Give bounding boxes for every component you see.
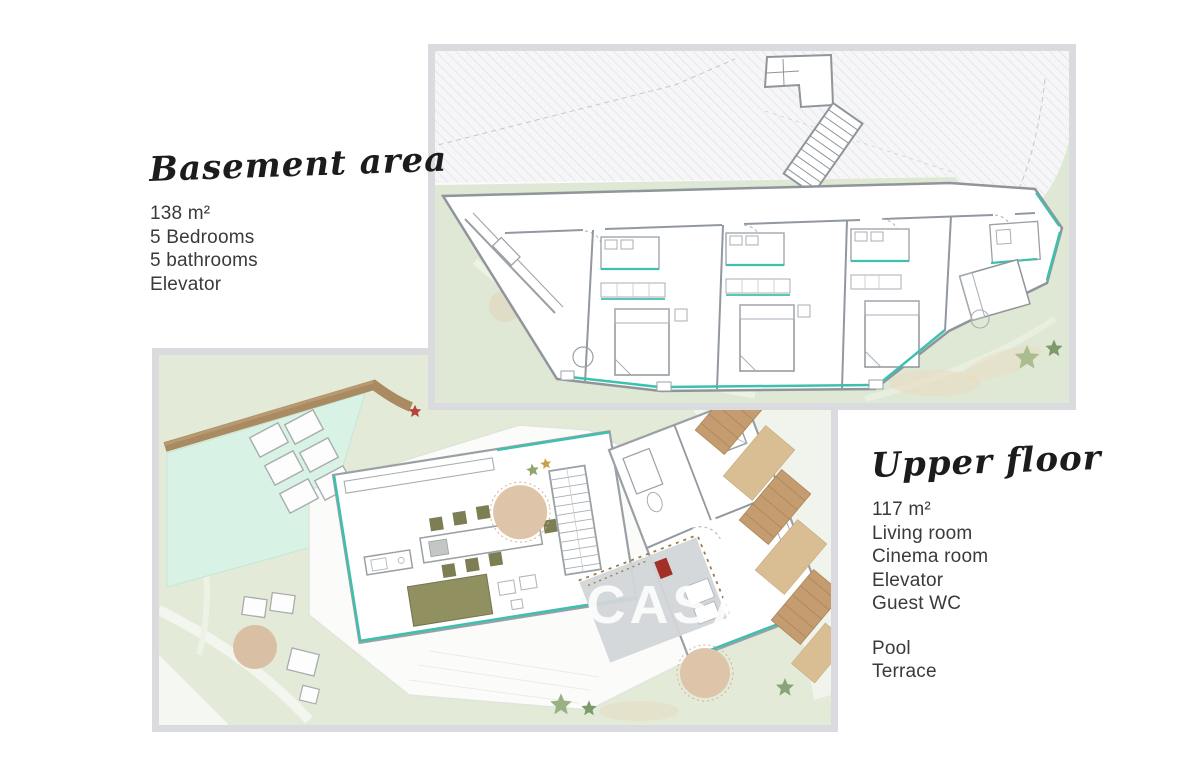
upper-feature: Cinema room bbox=[872, 545, 1132, 569]
upper-title: Upper floor bbox=[871, 437, 1132, 486]
basement-floorplan-card bbox=[428, 44, 1076, 410]
upper-feature: Elevator bbox=[872, 569, 1132, 593]
basement-area: 138 m² bbox=[150, 202, 450, 226]
upper-outdoor-feature: Pool bbox=[872, 637, 1132, 661]
basement-feature: 5 Bedrooms bbox=[150, 226, 450, 250]
upper-outdoor-feature: Terrace bbox=[872, 660, 1132, 684]
upper-area: 117 m² bbox=[872, 498, 1132, 522]
upper-feature: Living room bbox=[872, 522, 1132, 546]
upper-feature: Guest WC bbox=[872, 592, 1132, 616]
tree-icon bbox=[233, 625, 277, 669]
basement-info-panel: Basement area 138 m² 5 Bedrooms 5 bathro… bbox=[150, 150, 450, 296]
basement-specs: 138 m² 5 Bedrooms 5 bathrooms Elevator bbox=[150, 202, 450, 296]
page: CASA Basement area 138 m² 5 Bedrooms 5 b… bbox=[0, 0, 1200, 768]
upper-specs: 117 m² Living room Cinema room Elevator … bbox=[872, 498, 1132, 684]
upper-floorplan: CASA bbox=[159, 355, 831, 725]
basement-feature: 5 bathrooms bbox=[150, 249, 450, 273]
basement-feature: Elevator bbox=[150, 273, 450, 297]
basement-title: Basement area bbox=[149, 140, 450, 190]
upper-info-panel: Upper floor 117 m² Living room Cinema ro… bbox=[872, 446, 1132, 684]
tree-icon bbox=[680, 648, 730, 698]
basement-floorplan bbox=[435, 51, 1069, 403]
watermark-text: CASA bbox=[586, 575, 755, 635]
